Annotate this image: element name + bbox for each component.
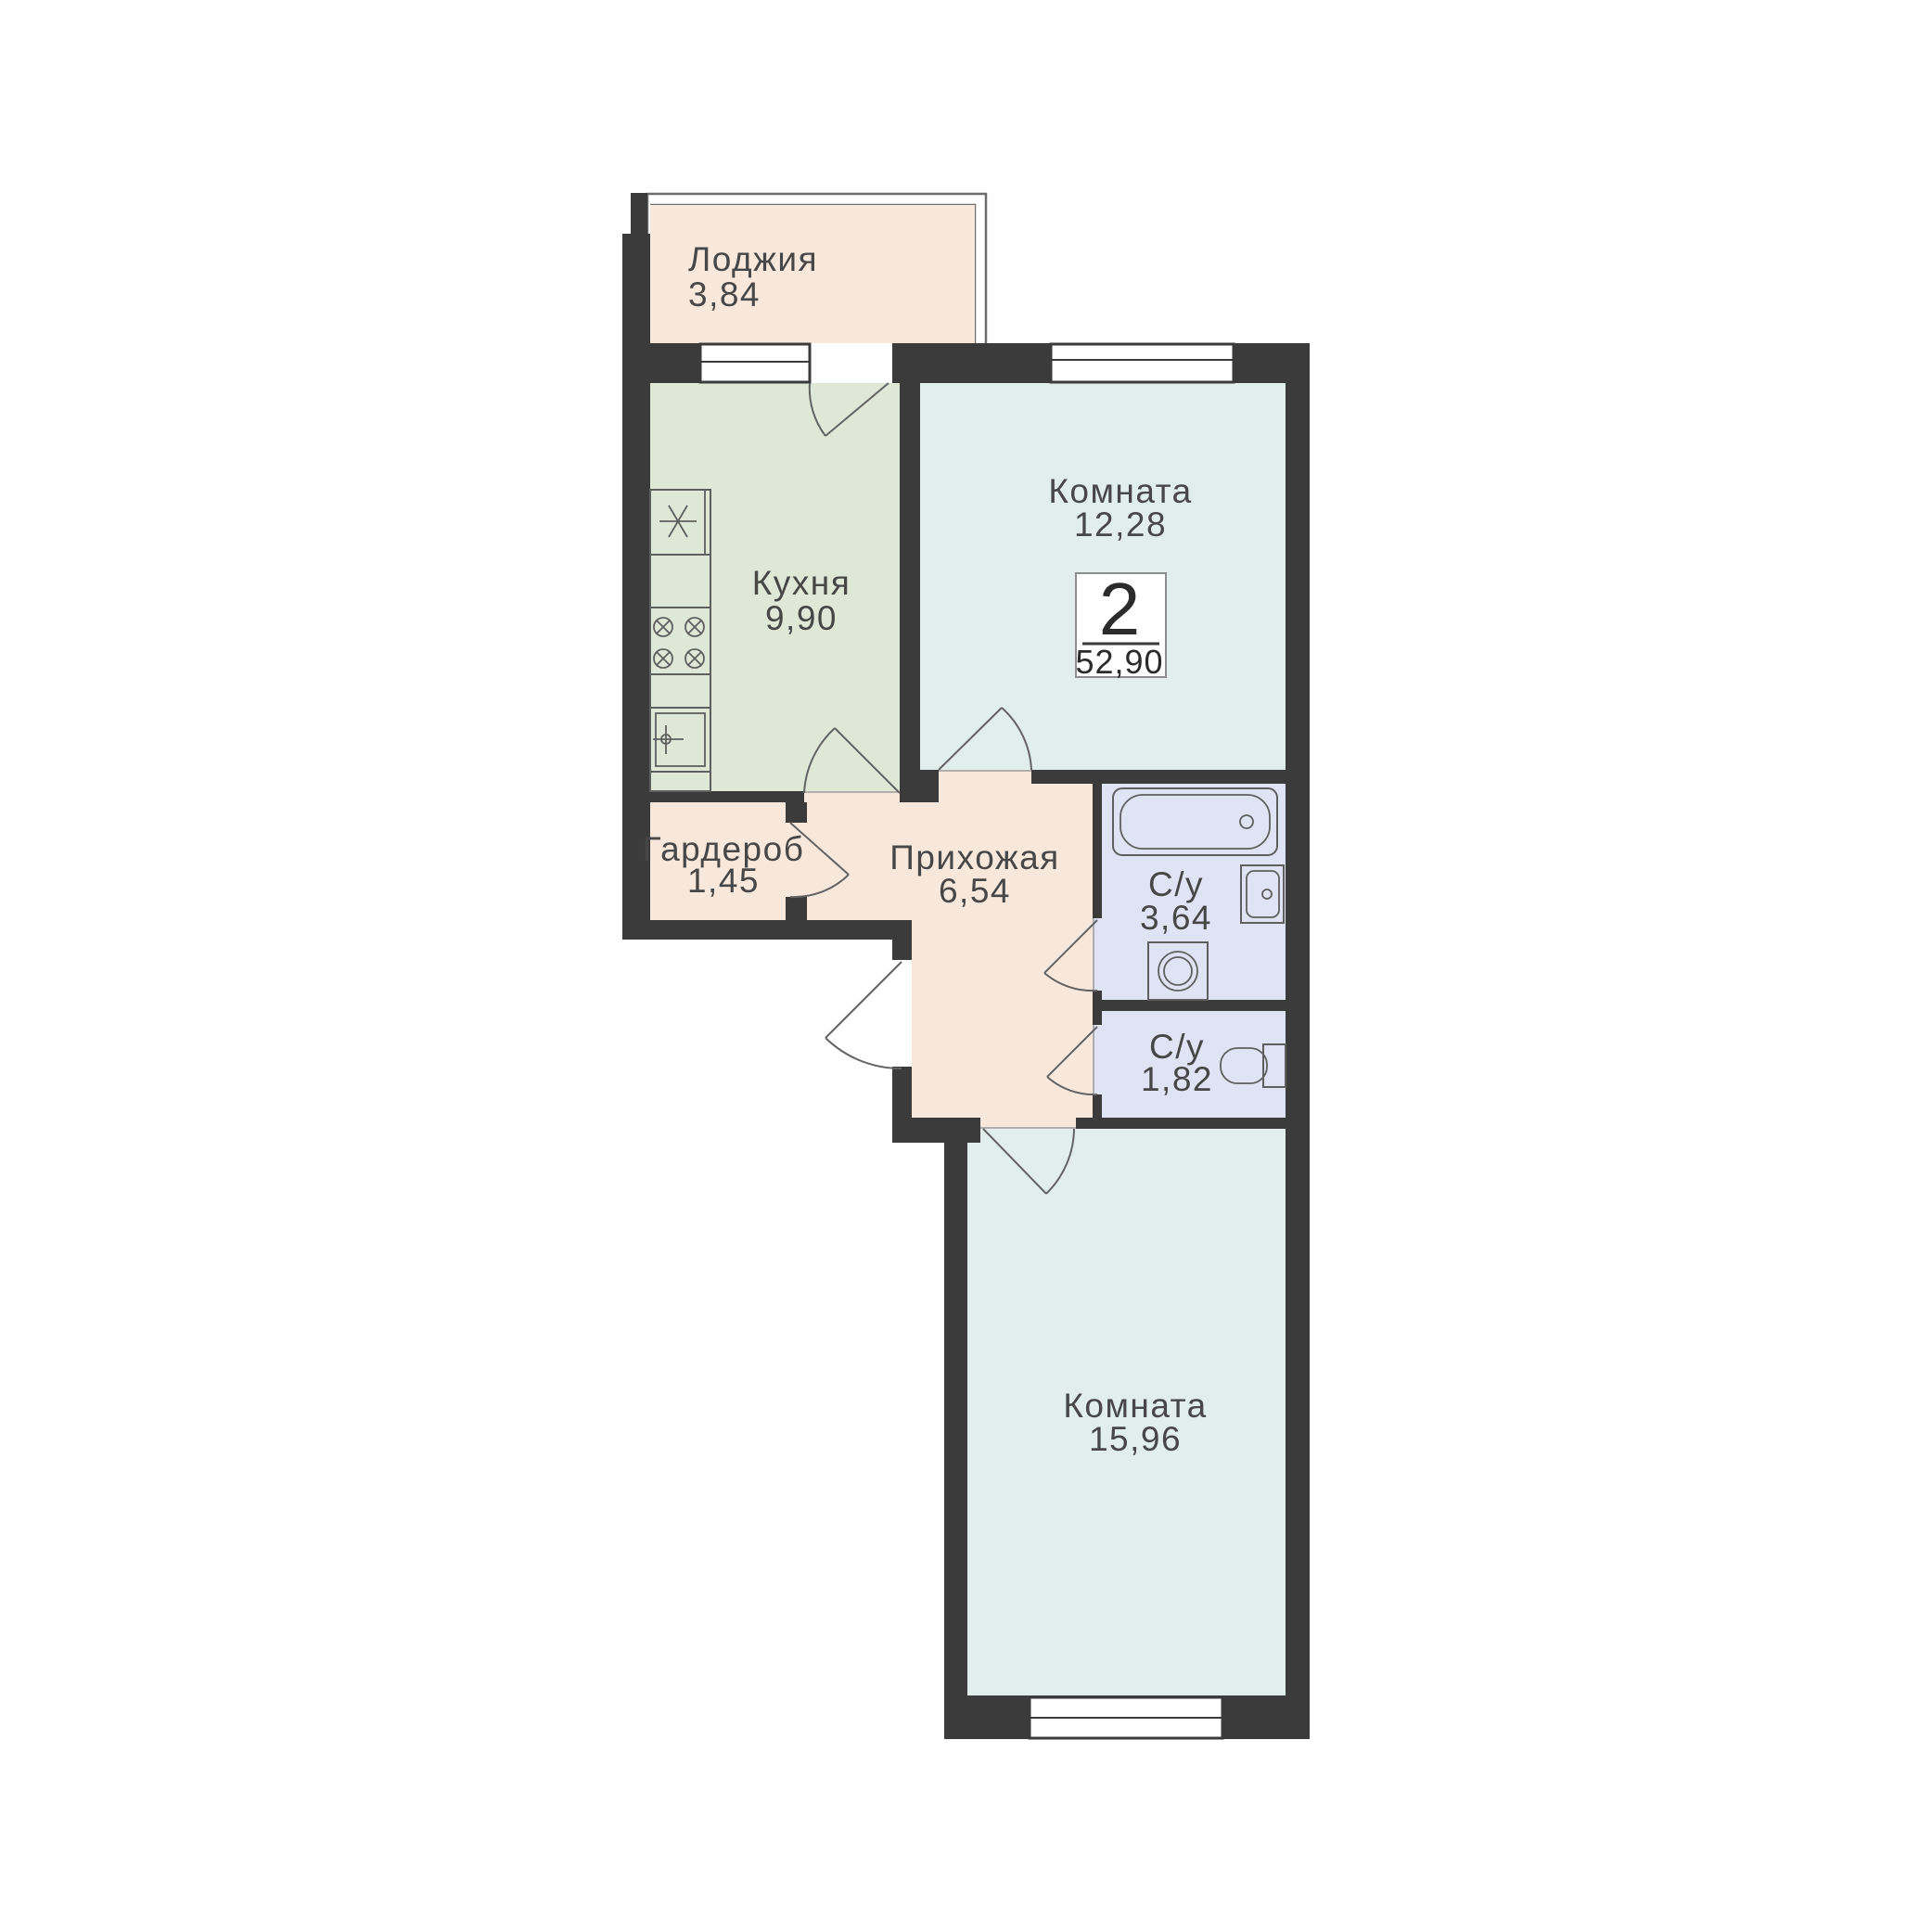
wall-segment [900, 383, 920, 770]
opening-room-1 [939, 770, 1031, 784]
room-area-label-kitchen: 9,90 [765, 599, 838, 637]
room-area-label-bathroom: 3,64 [1140, 899, 1212, 937]
room-label-loggia: Лоджия [688, 240, 818, 278]
wall-segment [1093, 784, 1102, 918]
wall-segment [622, 920, 912, 940]
room-area-label-room-1: 12,28 [1074, 505, 1167, 544]
wall-segment [1093, 1094, 1102, 1118]
badge-total-area: 52,90 [1075, 643, 1163, 681]
room-area-label-hallway: 6,54 [939, 872, 1011, 910]
wall-segment [892, 940, 912, 960]
wall-segment [1076, 1118, 1286, 1129]
floor-plan-page: Лоджия 3,84 Кухня 9,90 Комната 12,28 Гар… [0, 0, 1932, 1932]
wall-segment [1031, 770, 1286, 784]
apartment-badge: 2 52,90 [1075, 568, 1166, 681]
wall-segment [650, 343, 700, 383]
badge-rooms-count: 2 [1099, 568, 1141, 650]
room-area-label-room-2: 15,96 [1089, 1420, 1182, 1458]
floor-plan-drawing: Лоджия 3,84 Кухня 9,90 Комната 12,28 Гар… [0, 0, 1932, 1932]
entrance-door-swing [825, 962, 902, 1068]
room-fills [650, 205, 1286, 1695]
room-area-label-wardrobe: 1,45 [687, 862, 760, 900]
wall-segment [1093, 1000, 1286, 1011]
wall-segment [786, 802, 807, 823]
room-label-room-1: Комната [1048, 472, 1192, 510]
room-1-window [1051, 344, 1234, 382]
room-label-hallway: Прихожая [889, 838, 1059, 876]
wall-segment [631, 193, 647, 234]
opening-room-2 [980, 1118, 1076, 1129]
wall-segment [944, 1120, 967, 1739]
kitchen-window [700, 344, 810, 382]
wall-segment [1286, 383, 1310, 1739]
room-label-bathroom: С/у [1148, 865, 1204, 903]
wall-segment [650, 791, 804, 802]
room-label-kitchen: Кухня [752, 564, 851, 602]
room-label-room-2: Комната [1063, 1387, 1207, 1425]
room-area-hallway [807, 784, 1093, 1118]
room-area-label-loggia: 3,84 [688, 275, 761, 313]
room-area-label-wc: 1,82 [1141, 1060, 1213, 1098]
wall-segment [786, 897, 807, 920]
opening-kitchen [804, 791, 900, 802]
wall-segment [892, 343, 1051, 383]
wall-segment [900, 770, 939, 802]
wall-segment [1234, 343, 1310, 383]
